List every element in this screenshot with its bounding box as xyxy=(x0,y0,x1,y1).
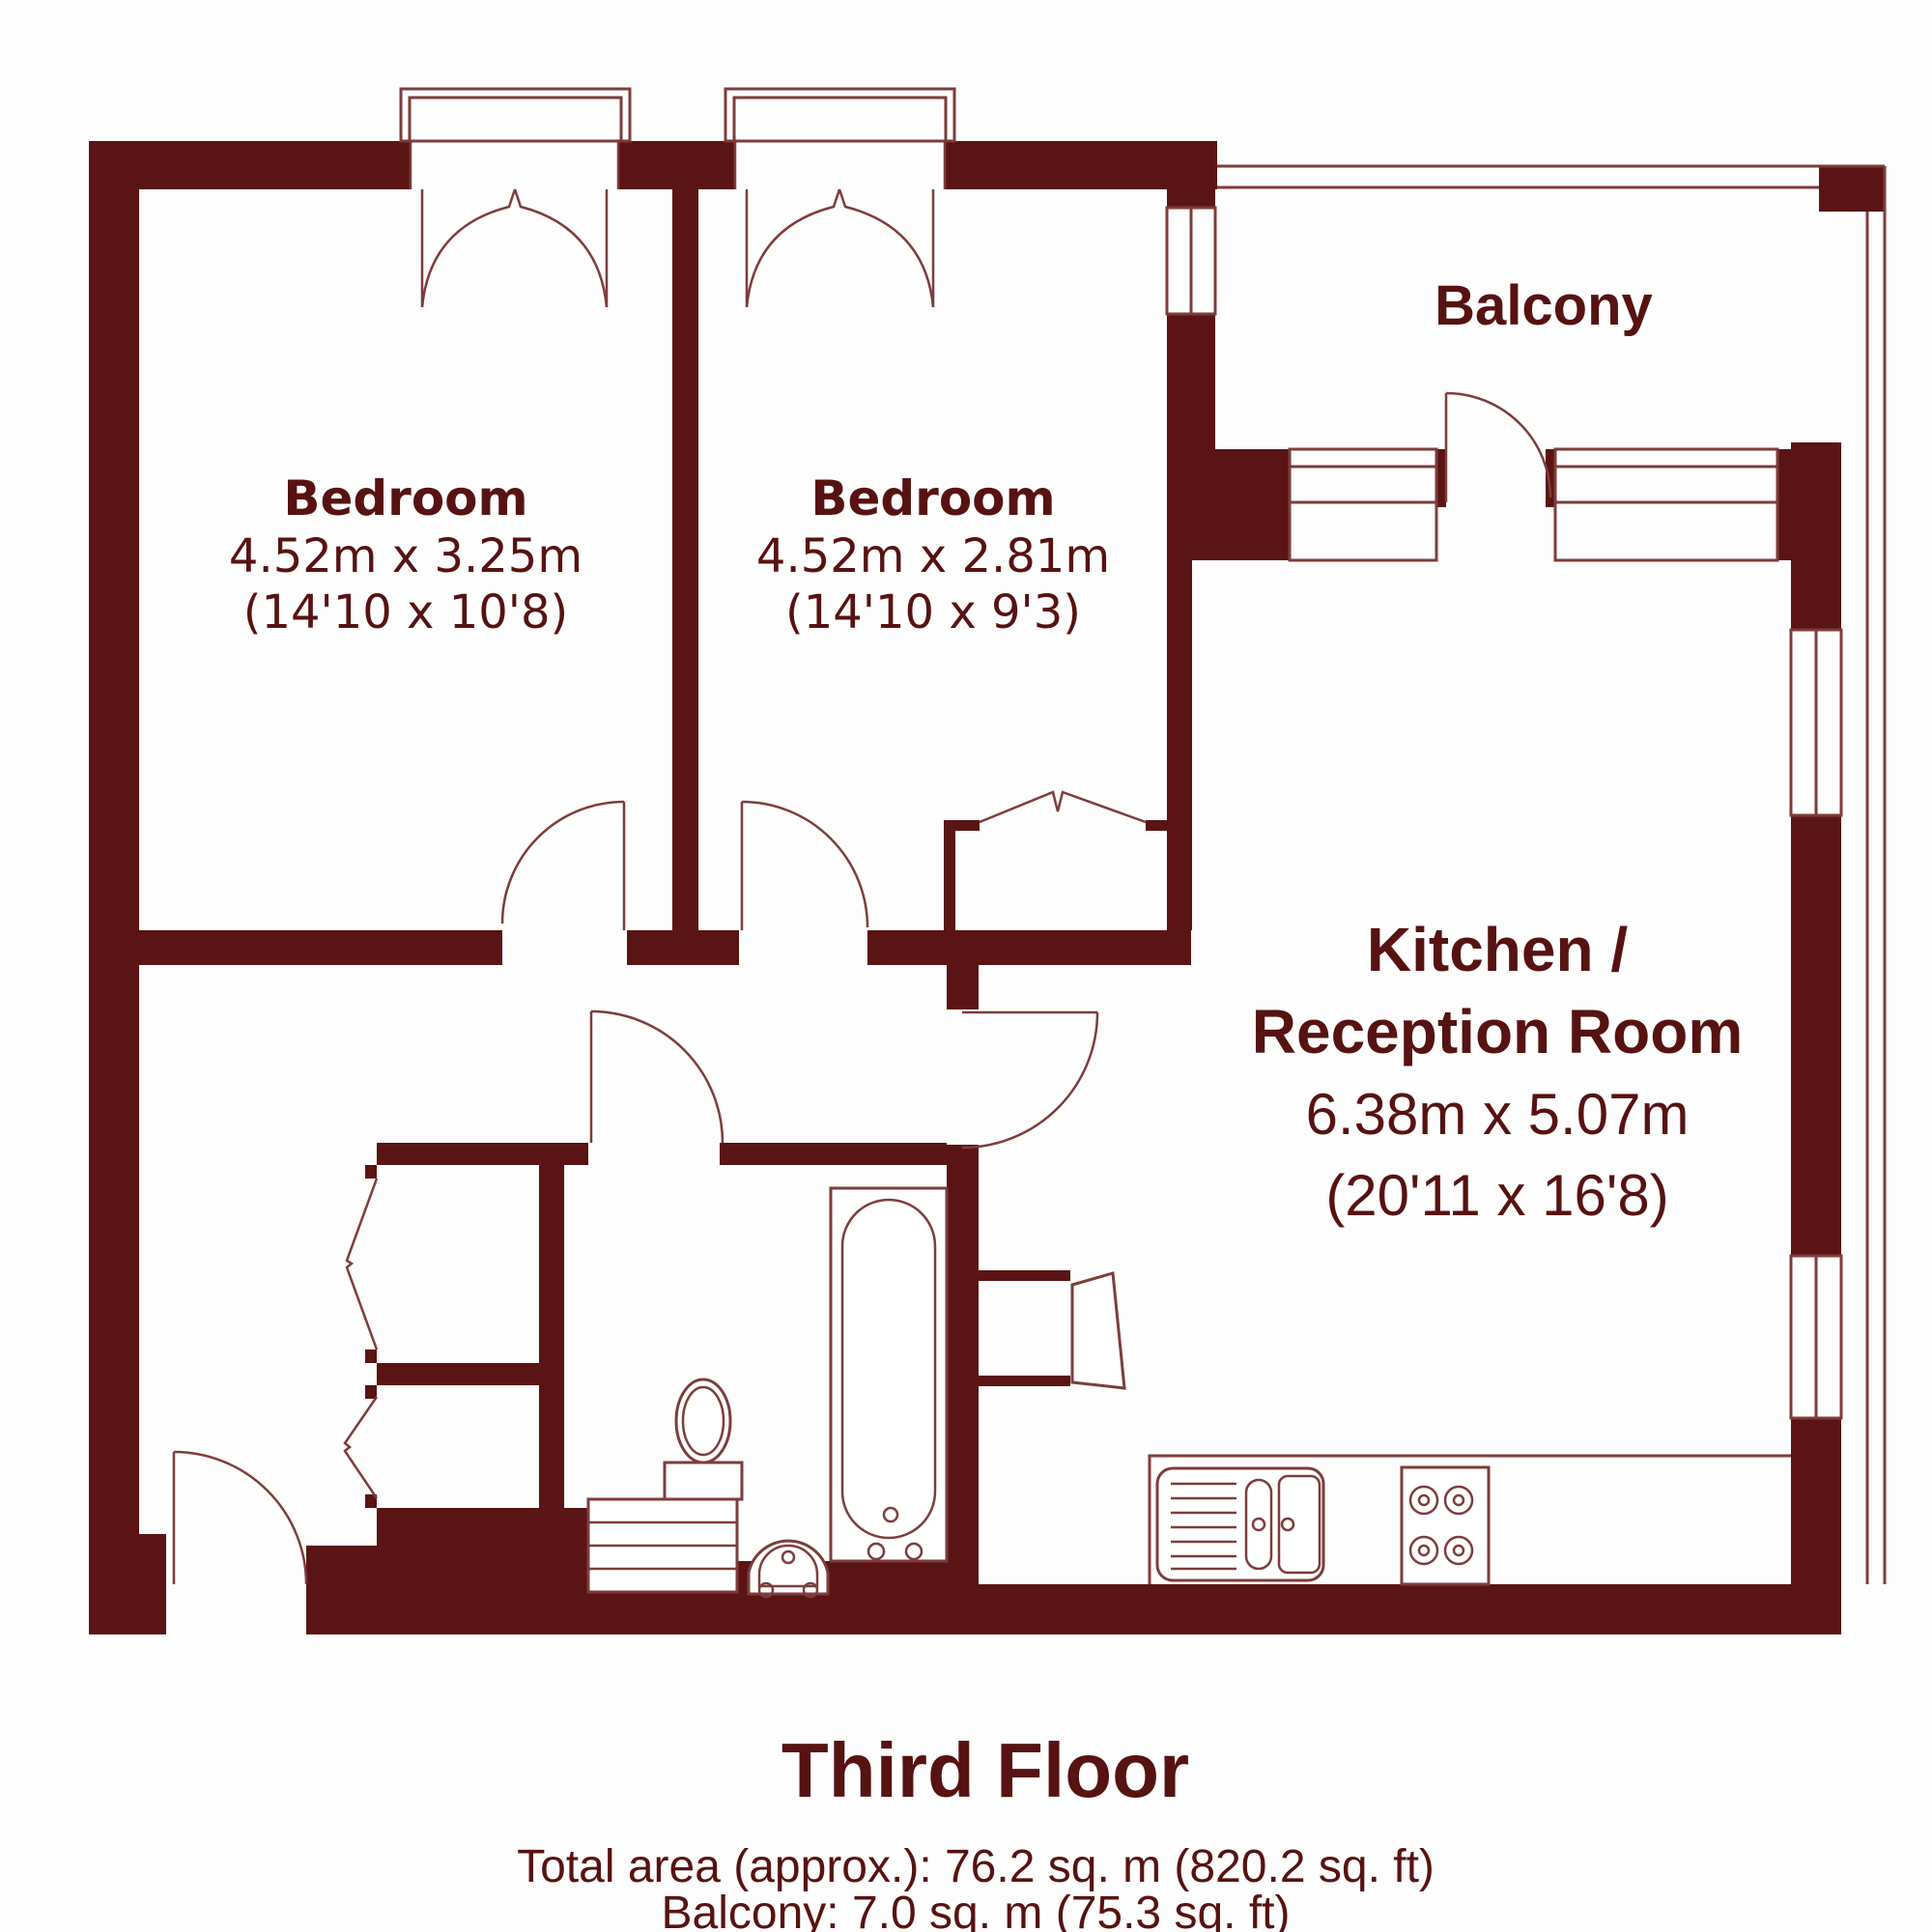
bedroom1-imperial: (14'10 x 10'8) xyxy=(243,585,569,639)
floorplan-drawing: Bedroom 4.52m x 3.25m (14'10 x 10'8) Bed… xyxy=(0,0,1932,1932)
bedroom2-name: Bedroom xyxy=(810,470,1055,526)
bedroom2-imperial: (14'10 x 9'3) xyxy=(785,585,1081,639)
wall-balcony-corner-left xyxy=(1167,449,1290,560)
wall-hall-a xyxy=(139,930,502,965)
wall-bathroom-top-a xyxy=(377,1143,588,1165)
wall-balcony-corner-right xyxy=(1777,449,1791,560)
wall-left xyxy=(89,189,139,1584)
wall-bedroom-divider xyxy=(672,189,698,930)
kitchen-name-line1: Kitchen / xyxy=(1367,915,1628,984)
wall-kitchen-stub xyxy=(947,965,979,1009)
closet-jamb-2 xyxy=(365,1350,377,1363)
closet-jamb-1 xyxy=(365,1165,377,1179)
wall-bottom-left xyxy=(89,1584,166,1634)
wall-bed2-right-top xyxy=(1167,189,1215,208)
kitchen-sink-unit xyxy=(1157,1468,1323,1580)
closet-jamb-3 xyxy=(365,1385,377,1399)
wall-top-a xyxy=(89,141,411,189)
wall-bed2-right-lower xyxy=(1167,560,1192,930)
wall-top-b xyxy=(618,141,735,189)
wall-bed2-closet-stub-l xyxy=(944,820,980,831)
kitchen-hob xyxy=(1402,1467,1489,1584)
cupboard-stub-bottom xyxy=(979,1376,1070,1386)
kitchen-name-line2: Reception Room xyxy=(1252,997,1743,1066)
toilet-cistern xyxy=(665,1463,742,1499)
balcony-name: Balcony xyxy=(1435,274,1653,337)
wall-top-c xyxy=(945,141,1217,189)
wall-closet-bottom xyxy=(377,1508,588,1546)
kitchen-imperial: (20'11 x 16'8) xyxy=(1325,1163,1668,1228)
wall-kitchen-divider xyxy=(947,1145,979,1584)
floorplan-page: Bedroom 4.52m x 3.25m (14'10 x 10'8) Bed… xyxy=(0,0,1932,1932)
kitchen-metric: 6.38m x 5.07m xyxy=(1306,1082,1690,1147)
wall-closet-divider xyxy=(377,1363,539,1385)
bedroom1-metric: 4.52m x 3.25m xyxy=(229,529,582,583)
wall-left-foot xyxy=(89,1534,166,1584)
total-area: Total area (approx.): 76.2 sq. m (820.2 … xyxy=(517,1841,1435,1892)
wall-bed2-closet-left xyxy=(944,820,955,930)
wall-bottom-main xyxy=(306,1584,1841,1634)
bathtub-outer xyxy=(831,1188,947,1561)
wall-hall-b xyxy=(627,930,739,965)
floor-title: Third Floor xyxy=(781,1727,1189,1813)
bedroom2-metric: 4.52m x 2.81m xyxy=(756,529,1110,583)
wall-balcony-top-corner xyxy=(1819,166,1885,212)
bedroom1-name: Bedroom xyxy=(283,470,527,526)
cupboard-stub-top xyxy=(979,1270,1070,1281)
wall-right-c xyxy=(1791,1418,1841,1584)
balcony-area: Balcony: 7.0 sq. m (75.3 sq. ft) xyxy=(662,1888,1291,1932)
wall-bathroom-left xyxy=(539,1165,564,1508)
wall-bed2-right-mid xyxy=(1167,314,1215,449)
wall-hall-c xyxy=(867,930,1191,965)
toilet-bowl-outer xyxy=(676,1379,730,1463)
wall-bathroom-top-b xyxy=(720,1143,947,1165)
wall-bathroom-step xyxy=(306,1546,618,1584)
wall-right-a xyxy=(1791,442,1841,630)
wall-right-b xyxy=(1791,815,1841,1256)
wall-bed2-closet-stub-r xyxy=(1146,820,1167,831)
